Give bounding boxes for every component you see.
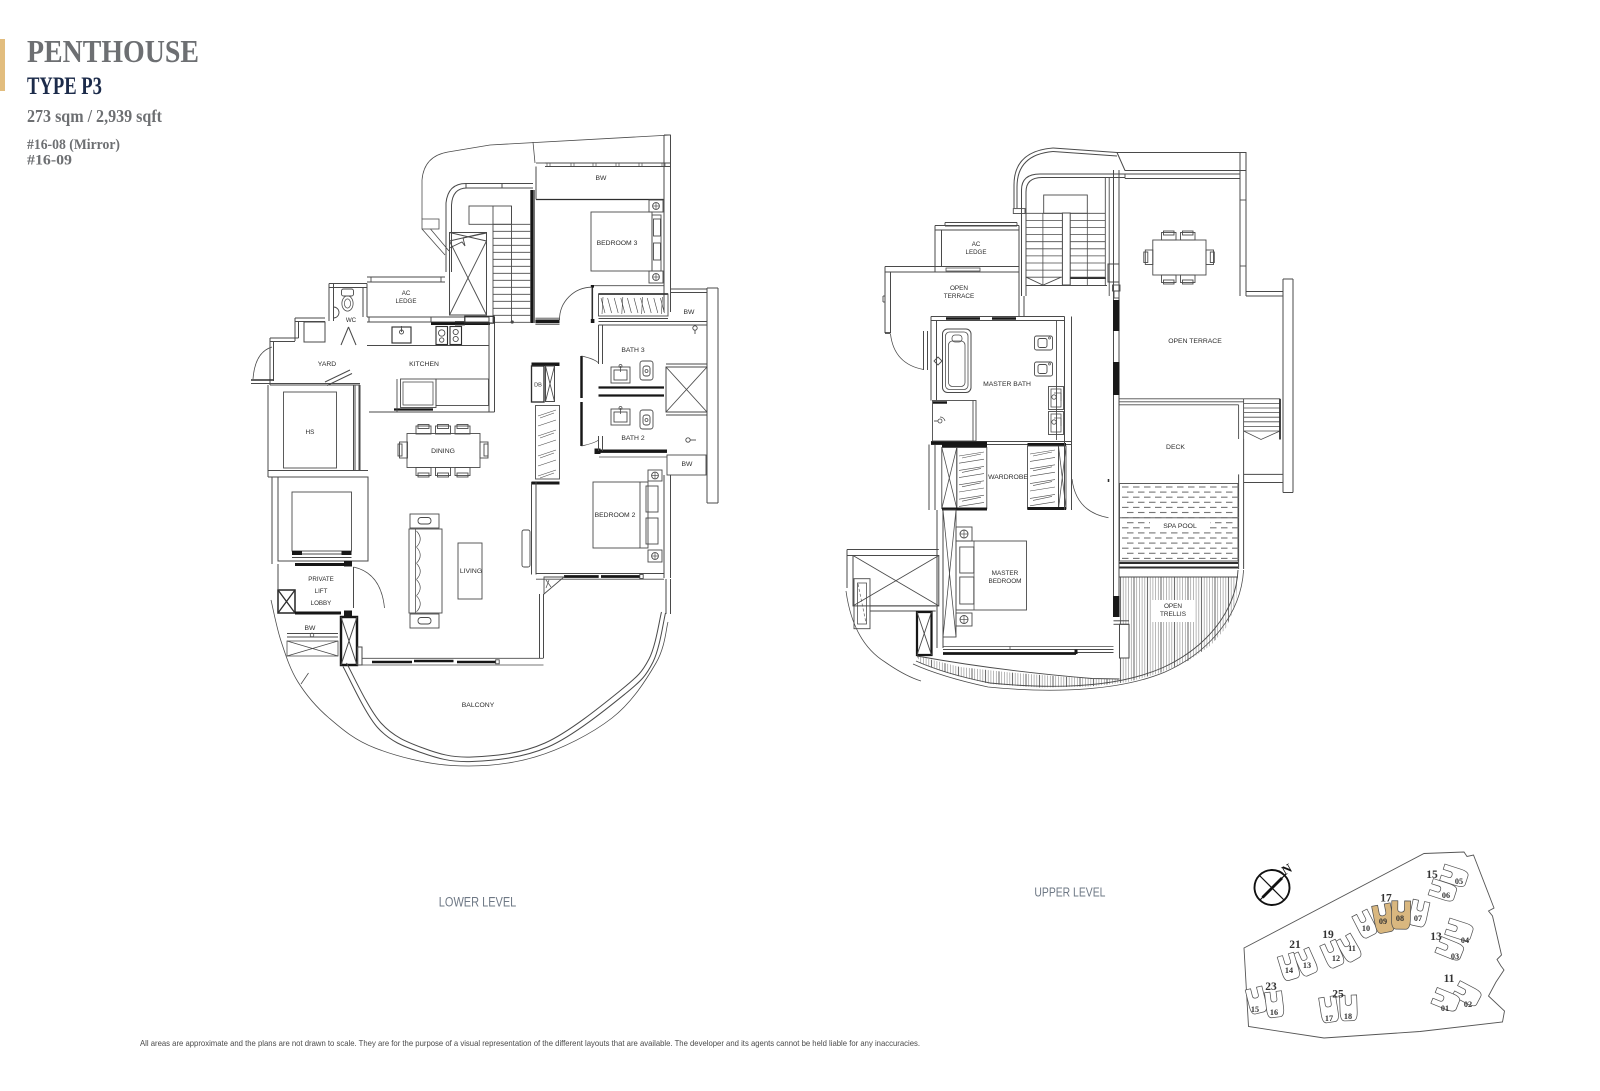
svg-text:BW: BW [684, 309, 696, 316]
svg-text:TRELLIS: TRELLIS [1160, 611, 1186, 618]
svg-text:05: 05 [1455, 877, 1463, 886]
svg-text:06: 06 [1442, 891, 1450, 900]
svg-text:02: 02 [1464, 1000, 1472, 1009]
svg-text:BALCONY: BALCONY [462, 702, 495, 709]
svg-text:TYPE P3: TYPE P3 [27, 71, 102, 100]
svg-text:273 sqm / 2,939 sqft: 273 sqm / 2,939 sqft [27, 106, 162, 126]
svg-text:BATH 2: BATH 2 [621, 435, 645, 442]
svg-text:25: 25 [1332, 989, 1344, 1001]
svg-text:LOBBY: LOBBY [311, 600, 332, 607]
svg-text:18: 18 [1344, 1012, 1352, 1021]
svg-text:KITCHEN: KITCHEN [409, 361, 439, 368]
svg-text:13: 13 [1430, 931, 1442, 943]
svg-text:BW: BW [682, 461, 694, 468]
svg-text:N: N [1279, 860, 1295, 878]
svg-text:14: 14 [1285, 966, 1293, 975]
svg-text:17: 17 [1325, 1014, 1333, 1023]
svg-text:23: 23 [1265, 981, 1277, 993]
svg-text:BW: BW [305, 625, 317, 632]
svg-text:DB: DB [534, 383, 542, 389]
svg-text:LIVING: LIVING [460, 568, 482, 575]
svg-text:DECK: DECK [1166, 444, 1185, 451]
svg-text:MASTER: MASTER [992, 570, 1019, 577]
svg-text:PENTHOUSE: PENTHOUSE [27, 34, 199, 69]
svg-text:AC: AC [402, 290, 411, 297]
svg-text:BW: BW [596, 175, 608, 182]
svg-text:#16-08 (Mirror): #16-08 (Mirror) [27, 137, 120, 153]
svg-text:BATH 3: BATH 3 [621, 347, 645, 354]
svg-text:WC: WC [346, 317, 357, 324]
svg-text:11: 11 [1444, 973, 1455, 985]
svg-text:01: 01 [1441, 1004, 1449, 1013]
svg-text:15: 15 [1426, 869, 1438, 881]
svg-text:BEDROOM 2: BEDROOM 2 [595, 512, 636, 519]
svg-text:BEDROOM 3: BEDROOM 3 [597, 240, 638, 247]
svg-text:SPA POOL: SPA POOL [1163, 523, 1197, 530]
svg-text:HS: HS [306, 429, 315, 436]
svg-text:16: 16 [1270, 1008, 1278, 1017]
svg-text:21: 21 [1289, 939, 1301, 951]
svg-text:09: 09 [1379, 917, 1387, 926]
svg-text:03: 03 [1451, 952, 1459, 961]
svg-text:All areas are approximate and: All areas are approximate and the plans … [140, 1038, 920, 1048]
svg-text:WARDROBE: WARDROBE [988, 474, 1028, 481]
svg-text:YARD: YARD [318, 361, 336, 368]
svg-text:11: 11 [1348, 944, 1356, 953]
svg-text:12: 12 [1332, 954, 1340, 963]
svg-text:AC: AC [972, 241, 981, 248]
svg-text:LOWER LEVEL: LOWER LEVEL [439, 895, 517, 910]
svg-text:OPEN: OPEN [1164, 603, 1182, 610]
svg-text:19: 19 [1322, 929, 1334, 941]
svg-text:LIFT: LIFT [315, 588, 328, 595]
svg-text:OPEN: OPEN [950, 285, 968, 292]
svg-text:PRIVATE: PRIVATE [308, 576, 334, 583]
svg-text:LEDGE: LEDGE [966, 249, 987, 256]
svg-text:08: 08 [1396, 914, 1404, 923]
svg-text:07: 07 [1414, 914, 1422, 923]
svg-text:LEDGE: LEDGE [396, 298, 417, 305]
svg-text:OPEN TERRACE: OPEN TERRACE [1168, 338, 1222, 345]
svg-text:17: 17 [1380, 893, 1392, 905]
svg-text:TERRACE: TERRACE [944, 293, 975, 300]
svg-text:BEDROOM: BEDROOM [988, 578, 1021, 585]
svg-text:MASTER BATH: MASTER BATH [983, 381, 1031, 388]
svg-text:04: 04 [1461, 936, 1469, 945]
svg-text:#16-09: #16-09 [27, 153, 72, 169]
svg-text:UPPER LEVEL: UPPER LEVEL [1034, 884, 1105, 899]
svg-text:10: 10 [1362, 924, 1370, 933]
svg-text:13: 13 [1303, 961, 1311, 970]
svg-text:15: 15 [1251, 1005, 1259, 1014]
svg-text:DINING: DINING [431, 448, 455, 455]
